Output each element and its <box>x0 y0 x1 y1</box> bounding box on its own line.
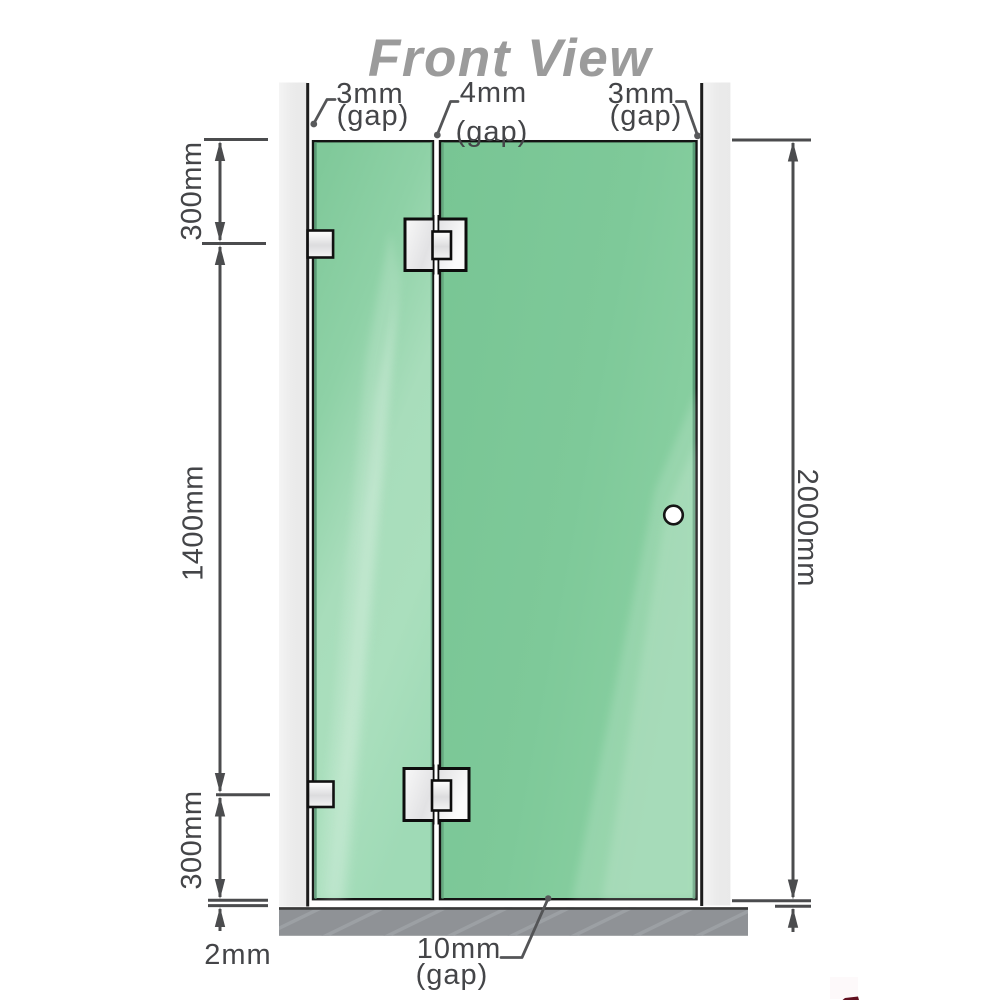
svg-text:1400mm: 1400mm <box>178 465 210 581</box>
svg-text:(gap): (gap) <box>416 959 489 991</box>
svg-text:4mm: 4mm <box>460 77 527 109</box>
svg-text:300mm: 300mm <box>176 141 208 240</box>
svg-text:(gap): (gap) <box>337 100 410 132</box>
svg-text:2000mm: 2000mm <box>791 469 823 588</box>
svg-text:300mm: 300mm <box>176 790 208 889</box>
svg-text:(gap): (gap) <box>456 116 529 148</box>
svg-text:(gap): (gap) <box>610 100 683 132</box>
svg-text:2mm: 2mm <box>204 939 271 971</box>
